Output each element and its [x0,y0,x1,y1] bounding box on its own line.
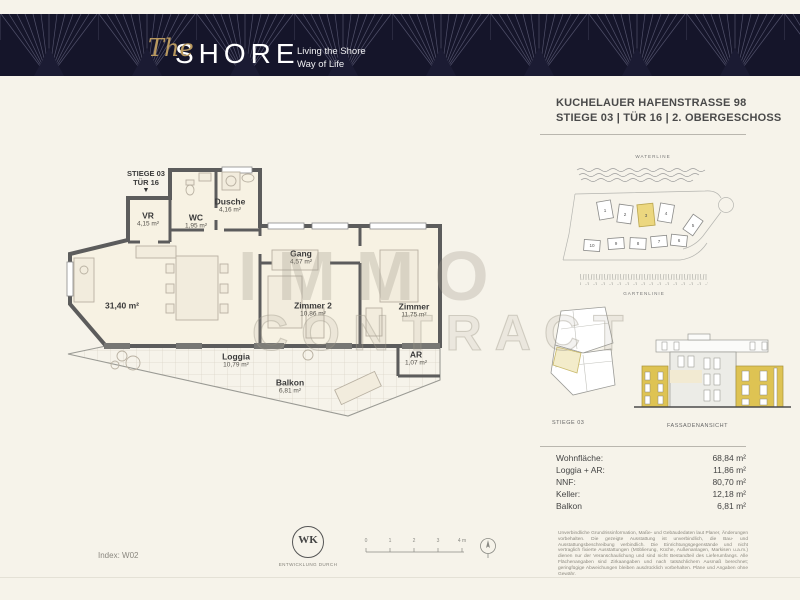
wk-logo-text: WK [293,527,323,553]
logo-main: SHORE [175,38,300,70]
room-label-zimmer: Zimmer 11,75 m² [399,303,430,320]
entrance-arrow-icon: ▼ [127,187,165,194]
table-row: Loggia + AR: 11,86 m² [556,464,746,476]
areas-table: Wohnfläche: 68,84 m² Loggia + AR: 11,86 … [556,452,746,512]
svg-text:5: 5 [692,223,695,228]
svg-text:6: 6 [678,238,681,243]
kitchen-island [136,246,176,258]
kitchen-counter [74,258,94,302]
tagline-line2: Way of Life [297,58,366,71]
table-row: NNF: 80,70 m² [556,476,746,488]
table-top-rule [540,446,746,447]
svg-text:2: 2 [413,538,416,544]
elevation-label: FASSADENANSICHT [667,423,728,429]
entrance-tuer: TÜR 16 [127,179,165,188]
floorplan-document: The SHORE Living the Shore Way of Life K… [0,0,800,600]
room-label-wc: WC 1,95 m² [185,214,207,231]
tagline: Living the Shore Way of Life [297,45,366,71]
address-line1: KUCHELAUER HAFENSTRASSE 98 [556,96,781,111]
gartenline-label: GARTENLINIE [623,291,665,296]
table-row: Balkon 6,81 m² [556,500,746,512]
svg-text:4: 4 [665,211,668,216]
facade-elevation [630,330,795,420]
table-row: Wohnfläche: 68,84 m² [556,452,746,464]
desk-zimmer [366,308,382,336]
bed-zimmer [380,250,418,302]
svg-text:1: 1 [604,208,607,213]
wc-toilet [186,180,194,185]
index-label: Index: W02 [98,551,138,560]
room-label-balkon: Balkon 6,81 m² [276,379,304,396]
table-row: Keller: 12,18 m² [556,488,746,500]
grass-strip-icon [580,274,708,285]
developer-label: ENTWICKLUNG DURCH [277,562,339,567]
tagline-line1: Living the Shore [297,45,366,58]
svg-text:9: 9 [615,241,618,246]
svg-text:3: 3 [645,213,648,218]
header-band: The SHORE Living the Shore Way of Life [0,14,800,76]
wc-sink [199,173,211,181]
svg-text:0: 0 [365,538,368,544]
svg-text:10: 10 [589,243,595,248]
highlighted-floor-band [670,370,702,383]
keyplan-label: STIEGE 03 [552,420,584,426]
dining-table [176,256,218,320]
water-waves-icon [577,169,705,182]
svg-text:3: 3 [437,538,440,544]
floor-plan-drawing [58,158,468,423]
scale-bar: 0 1 2 3 4 m [362,534,472,563]
entrance-label: STIEGE 03 TÜR 16 ▼ [127,170,165,194]
room-label-dusche: Dusche 4,16 m² [215,198,246,215]
address-block: KUCHELAUER HAFENSTRASSE 98 STIEGE 03 | T… [556,96,781,126]
art-deco-fan-pattern-icon [0,14,800,76]
logo-script: The [148,34,194,62]
room-label-wohnen: 31,40 m² [105,302,139,311]
page-bottom-rule [0,577,800,578]
room-label-vr: VR 4,15 m² [137,212,159,229]
svg-text:1: 1 [389,538,392,544]
site-plan: WATERLINE 1 2 3 [545,148,790,311]
north-compass-icon [477,536,499,567]
terrace-outline [68,346,440,416]
shower-tray [222,172,240,190]
room-label-loggia: Loggia 10,79 m² [222,353,250,370]
room-label-ar: AR 1,07 m² [405,351,427,368]
floor-plan: STIEGE 03 TÜR 16 ▼ VR 4,15 m² WC 1,95 m²… [58,158,468,423]
wk-logo: WK [292,526,324,558]
address-divider [540,134,746,135]
disclaimer-text: Unverbindliche Grundrissinformation, Maß… [558,531,748,577]
svg-text:7: 7 [658,239,661,244]
waterline-label: WATERLINE [635,154,670,159]
svg-text:8: 8 [637,241,640,246]
room-label-gang: Gang 4,57 m² [290,250,312,267]
key-plan [543,303,633,403]
svg-text:2: 2 [624,212,627,217]
address-line2: STIEGE 03 | TÜR 16 | 2. OBERGESCHOSS [556,111,781,126]
building-units: 1 2 3 4 5 10 9 8 7 6 [584,200,703,252]
room-label-zimmer2: Zimmer 2 10,86 m² [294,302,332,319]
svg-text:4 m: 4 m [458,538,466,544]
